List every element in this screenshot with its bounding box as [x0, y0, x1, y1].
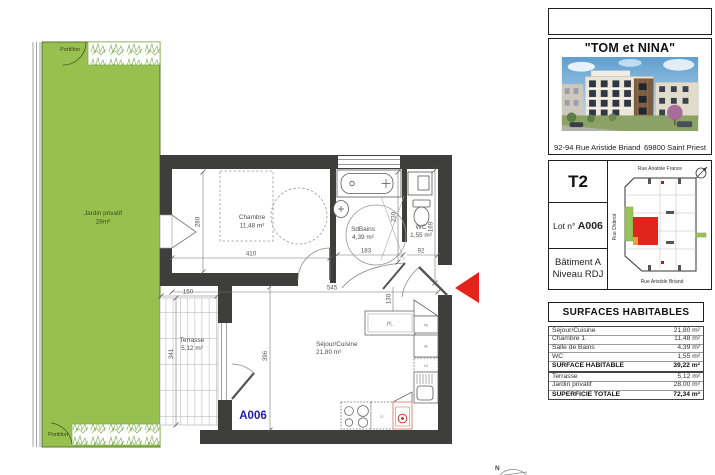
bathtub [337, 170, 401, 197]
wc-label: WC [416, 224, 427, 231]
svg-text:4,39 m²: 4,39 m² [352, 234, 374, 241]
building-level: Niveau RDJ [553, 269, 604, 281]
table-row: WC1,55 m² [549, 353, 703, 362]
siteplan-cell: Rue Anatole France Rue Diderot Rue Arist… [608, 161, 711, 289]
svg-text:28m²: 28m² [96, 219, 111, 226]
svg-text:230: 230 [391, 211, 398, 222]
garden-area [42, 42, 160, 447]
table-row: Jardin privatif28,00 m² [549, 382, 703, 391]
wc-vanity [408, 172, 432, 195]
street-top-label: Rue Anatole France [638, 166, 682, 172]
siteplan-highlight-terrace [633, 237, 638, 245]
unit-type-cell: T2 [549, 161, 607, 203]
svg-text:N: N [495, 465, 500, 472]
program-title: "TOM et NINA" [549, 39, 711, 55]
terrasse-deck [160, 298, 218, 425]
entrance-door [402, 267, 447, 297]
sejour-label: Séjour/Cuisine [316, 341, 358, 348]
svg-text:396: 396 [262, 350, 269, 361]
address-street: 92-94 Rue Aristide Briand [554, 143, 641, 152]
svg-text:5,12 m²: 5,12 m² [181, 345, 203, 352]
lot-prefix: Lot n° [553, 221, 575, 231]
lot-number: A006 [578, 220, 603, 232]
sdb-shaft-cross [381, 196, 404, 260]
window-chambre [160, 215, 196, 248]
building-photo [560, 57, 700, 136]
svg-text:LL: LL [380, 415, 384, 419]
chambre-label: Chambre [239, 214, 266, 221]
svg-text:PL: PL [387, 322, 393, 328]
building-cell: Bâtiment A Niveau RDJ [549, 249, 607, 289]
svg-text:169: 169 [428, 221, 435, 232]
unit-type: T2 [568, 172, 588, 192]
window-top [338, 156, 400, 168]
svg-text:Jardin privatif: Jardin privatif [84, 210, 122, 217]
surfaces-title-box: SURFACES HABITABLES [548, 302, 704, 322]
bathroom-sink [334, 201, 349, 218]
surfaces-title: SURFACES HABITABLES [563, 307, 690, 318]
surfaces-table-annex: Terrasse5,12 m² Jardin privatif28,00 m² … [548, 372, 704, 400]
svg-text:150: 150 [183, 289, 194, 296]
floorplan-drawing: Portillon Portillon Jardin privatif 28m² [0, 0, 540, 475]
street-bottom-label: Rue Aristide Briand [641, 279, 684, 285]
svg-text:280: 280 [195, 216, 202, 227]
lot-number-label: A006 [239, 410, 267, 422]
svg-text:FE: FE [424, 324, 429, 328]
svg-text:21,80 m²: 21,80 m² [316, 349, 341, 356]
hedge-bottom [72, 424, 160, 445]
svg-text:410: 410 [246, 251, 257, 258]
chambre-door [298, 248, 330, 280]
floorplan-sheet: Portillon Portillon Jardin privatif 28m² [0, 0, 715, 475]
svg-text:11,48 m²: 11,48 m² [240, 223, 265, 230]
entrance-arrow-icon [455, 272, 479, 303]
svg-text:341: 341 [168, 348, 175, 359]
table-row-total-habitable: SURFACE HABITABLE39,22 m² [549, 362, 703, 371]
unit-identity-column: T2 Lot n° A006 Bâtiment A Niveau RDJ [549, 161, 608, 289]
turning-circle-chambre [271, 188, 327, 244]
siteplan-garden-right [696, 233, 706, 237]
svg-text:92: 92 [418, 248, 425, 255]
siteplan-map: Rue Anatole France Rue Diderot Rue Arist… [608, 161, 711, 288]
building-name: Bâtiment A [555, 257, 601, 269]
siteplan-compass-icon [695, 167, 707, 179]
top-empty-box [548, 8, 712, 35]
svg-text:183: 183 [361, 248, 372, 255]
street-left-label: Rue Diderot [612, 213, 618, 240]
svg-text:130: 130 [386, 293, 393, 304]
siteplan-garden-strip [625, 207, 633, 241]
unit-identity-box: T2 Lot n° A006 Bâtiment A Niveau RDJ Rue… [548, 160, 712, 290]
sdbains-door [342, 263, 405, 289]
address-city: 69800 Saint Priest [644, 143, 706, 152]
surfaces-table: Séjour/Cuisine21,80 m² Chambre 111,48 m²… [548, 326, 704, 372]
oven-red [393, 402, 412, 429]
lot-cell: Lot n° A006 [549, 203, 607, 249]
north-compass-icon: N [495, 465, 527, 475]
portillon-bottom-label: Portillon [48, 432, 68, 438]
terrasse-door [222, 323, 255, 400]
sdbains-label: SdBains [351, 226, 375, 233]
svg-text:1,55 m²: 1,55 m² [410, 232, 432, 239]
portillon-top-label: Portillon [60, 47, 80, 53]
garden-fence [33, 42, 40, 447]
hedge-top [88, 42, 160, 65]
table-row-total: SUPERFICIE TOTALE72,34 m² [549, 391, 703, 400]
svg-text:LV: LV [424, 364, 429, 368]
terrasse-label: Terrasse [180, 337, 205, 344]
program-box: "TOM et NINA" [548, 38, 712, 155]
address-row: 92-94 Rue Aristide Briand 69800 Saint Pr… [554, 143, 706, 152]
bed-placeholder [220, 171, 273, 241]
svg-text:545: 545 [327, 285, 338, 292]
